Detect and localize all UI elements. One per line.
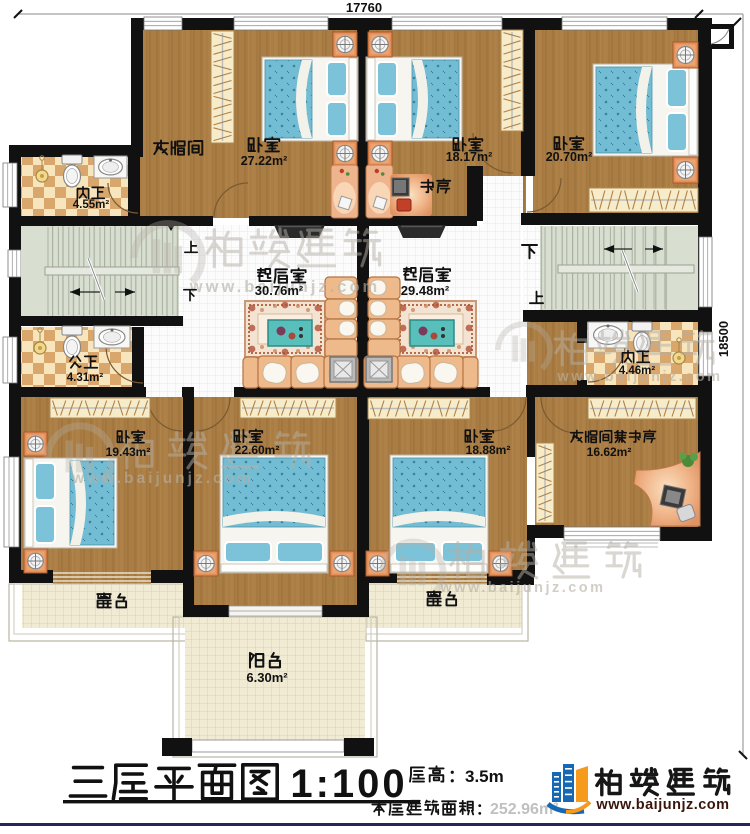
svg-text:1:100: 1:100 <box>290 762 407 806</box>
svg-text:19.43m²: 19.43m² <box>106 445 151 459</box>
svg-text:6.30m²: 6.30m² <box>246 670 288 685</box>
svg-text:18.88m²: 18.88m² <box>466 443 511 457</box>
svg-text:4.46m²: 4.46m² <box>619 365 656 377</box>
svg-text:17760: 17760 <box>346 0 382 15</box>
svg-text:30.76m²: 30.76m² <box>255 283 304 298</box>
svg-text:20.70m²: 20.70m² <box>546 150 593 164</box>
svg-text:4.31m²: 4.31m² <box>67 372 104 384</box>
svg-text:：: ： <box>476 801 491 818</box>
svg-text:16.62m²: 16.62m² <box>587 445 632 459</box>
svg-text:18.17m²: 18.17m² <box>446 150 493 164</box>
svg-text:18500: 18500 <box>716 321 731 357</box>
svg-text:22.60m²: 22.60m² <box>235 443 280 457</box>
svg-text:29.48m²: 29.48m² <box>401 283 450 298</box>
svg-text:27.22m²: 27.22m² <box>241 154 288 168</box>
svg-text:www.baijunjz.com: www.baijunjz.com <box>595 797 729 813</box>
svg-text:：3.5m: ：3.5m <box>448 767 504 786</box>
svg-text:www.baijunjz.com: www.baijunjz.com <box>439 580 605 596</box>
svg-text:4.55m²: 4.55m² <box>73 199 110 211</box>
svg-text:252.96m²: 252.96m² <box>490 801 559 818</box>
svg-text:www.baijunjz.com: www.baijunjz.com <box>71 470 254 487</box>
